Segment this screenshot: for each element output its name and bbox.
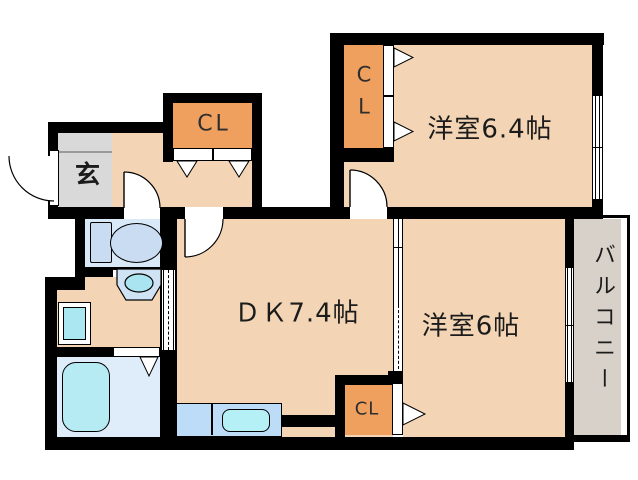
toilet-tank bbox=[90, 222, 112, 263]
counter-divider bbox=[211, 404, 213, 435]
wall-segment bbox=[252, 93, 262, 219]
sliding-door-dashed-line bbox=[398, 305, 399, 369]
wall-segment bbox=[330, 33, 604, 45]
wall-segment bbox=[48, 207, 124, 219]
bedroom1-window bbox=[592, 95, 603, 200]
kitchen-sink bbox=[222, 409, 270, 432]
wall-segment bbox=[330, 33, 344, 219]
wall-segment bbox=[45, 357, 57, 437]
balcony-outline bbox=[627, 215, 630, 441]
closet-door-divider bbox=[384, 95, 393, 97]
washroom-door-dashed-line bbox=[168, 270, 169, 350]
balcony-label: バルコニー bbox=[586, 243, 618, 398]
bedroom2-label: 洋室6帖 bbox=[422, 306, 521, 343]
toilet-bowl bbox=[110, 223, 163, 263]
bath-door bbox=[113, 347, 160, 357]
entrance-door-arc bbox=[9, 156, 54, 201]
wall-segment bbox=[45, 290, 57, 347]
wall-segment bbox=[75, 267, 113, 277]
closet-hall-doors bbox=[173, 148, 252, 161]
wall-segment bbox=[592, 33, 603, 95]
genkan-label: 玄 bbox=[75, 155, 101, 191]
wall-segment bbox=[45, 277, 85, 290]
washroom-door bbox=[162, 270, 175, 350]
closet-bedroom1-doors bbox=[383, 45, 394, 148]
wall-segment bbox=[45, 347, 113, 357]
sliding-door-line bbox=[398, 219, 399, 305]
closet-bedroom1-label: C L bbox=[357, 60, 372, 123]
wall-segment bbox=[335, 375, 345, 445]
wall-segment bbox=[45, 437, 574, 450]
closet-bedroom2-label: CL bbox=[355, 399, 380, 420]
wall-segment bbox=[344, 148, 394, 162]
closet-bedroom1-label-line2: L bbox=[357, 91, 372, 123]
bedroom1-label: 洋室6.4帖 bbox=[427, 109, 552, 146]
closet-door-divider bbox=[212, 149, 214, 160]
balcony-outline bbox=[574, 435, 630, 442]
wall-segment bbox=[565, 213, 574, 267]
wall-segment bbox=[163, 93, 262, 103]
wall-thin-line bbox=[113, 267, 161, 270]
washing-machine-pan-inner bbox=[63, 307, 86, 340]
window-glass-line bbox=[593, 147, 602, 148]
entrance-door-swing bbox=[9, 156, 54, 201]
entrance-door-leaf bbox=[49, 150, 59, 206]
dk-door-opening bbox=[185, 207, 223, 219]
window-glass-line bbox=[566, 325, 573, 326]
balcony-outline bbox=[599, 215, 630, 218]
wall-segment bbox=[223, 207, 345, 219]
wall-segment bbox=[48, 122, 168, 133]
sliding-door-tick bbox=[394, 247, 402, 248]
bedroom1-door-opening bbox=[350, 207, 387, 219]
closet-bedroom2-door bbox=[392, 383, 403, 435]
wall-segment bbox=[565, 383, 574, 437]
floorplan-canvas: 洋室6.4帖 ＤＫ7.4帖 洋室6帖 玄 CL C L CL バルコニー bbox=[0, 0, 638, 480]
bedroom2-window bbox=[565, 267, 574, 383]
wall-segment bbox=[282, 415, 335, 427]
wall-segment bbox=[160, 207, 185, 219]
dk-label: ＤＫ7.4帖 bbox=[234, 293, 359, 330]
closet-bedroom1-label-line1: C bbox=[357, 60, 372, 92]
washroom-door-line bbox=[163, 270, 164, 350]
dk-bedroom2-sliding-door bbox=[393, 219, 403, 371]
toilet-door-opening bbox=[124, 207, 160, 219]
genkan-step-line bbox=[58, 151, 112, 153]
bathtub bbox=[62, 362, 110, 432]
washroom-door-line bbox=[173, 270, 174, 350]
wall-segment bbox=[163, 93, 173, 162]
closet-hall-label: CL bbox=[197, 112, 231, 137]
